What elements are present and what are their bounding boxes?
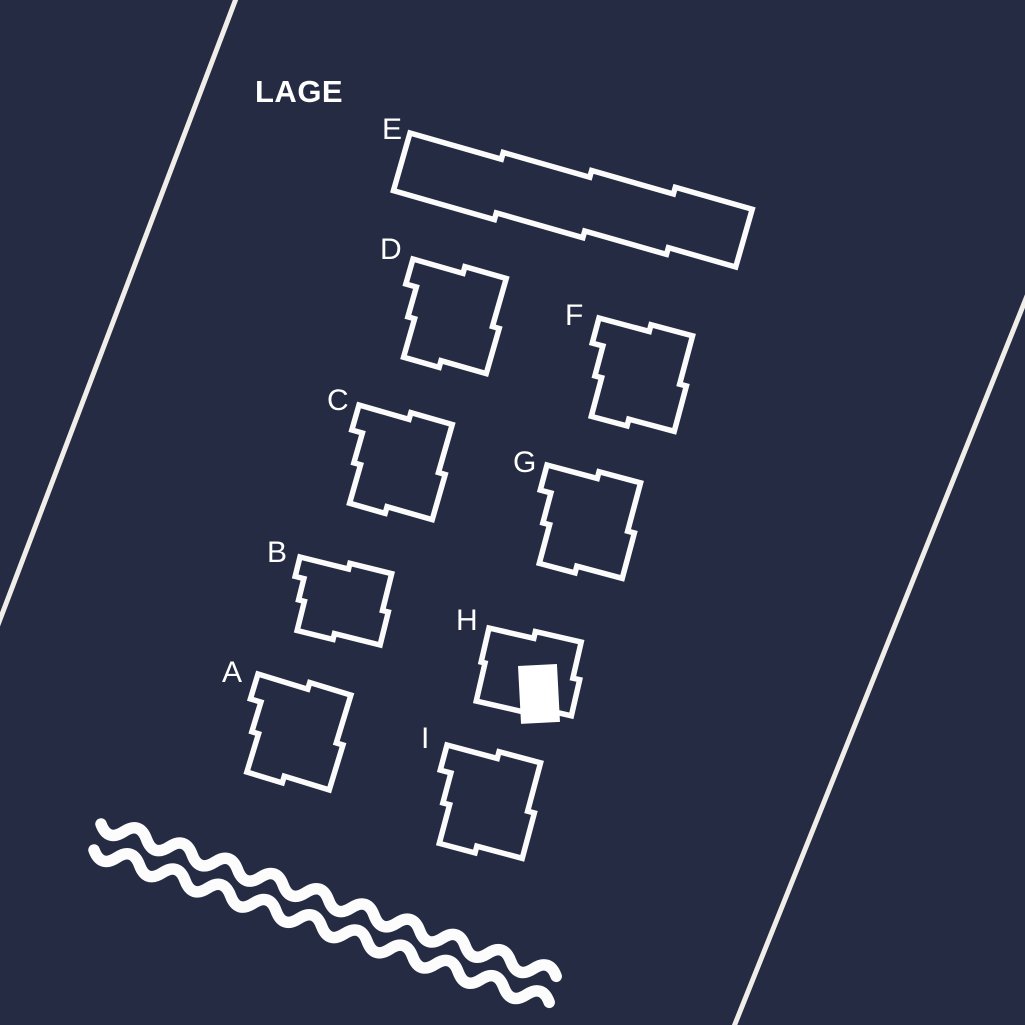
building-label-b: B (267, 536, 287, 569)
building-label-f: F (565, 299, 583, 332)
building-label-c: C (327, 384, 349, 417)
building-label-a: A (222, 656, 242, 689)
building-label-h: H (456, 604, 478, 637)
page-title: LAGE (255, 74, 343, 109)
building-label-d: D (380, 233, 402, 266)
building-label-g: G (513, 446, 536, 479)
highlighted-unit-building-h[interactable] (518, 664, 560, 724)
site-plan-page: LAGE A B C D E F G H I (0, 0, 1025, 1025)
building-label-e: E (382, 113, 402, 146)
site-plan-map: LAGE A B C D E F G H I (0, 0, 1025, 1025)
building-label-i: I (421, 722, 429, 755)
